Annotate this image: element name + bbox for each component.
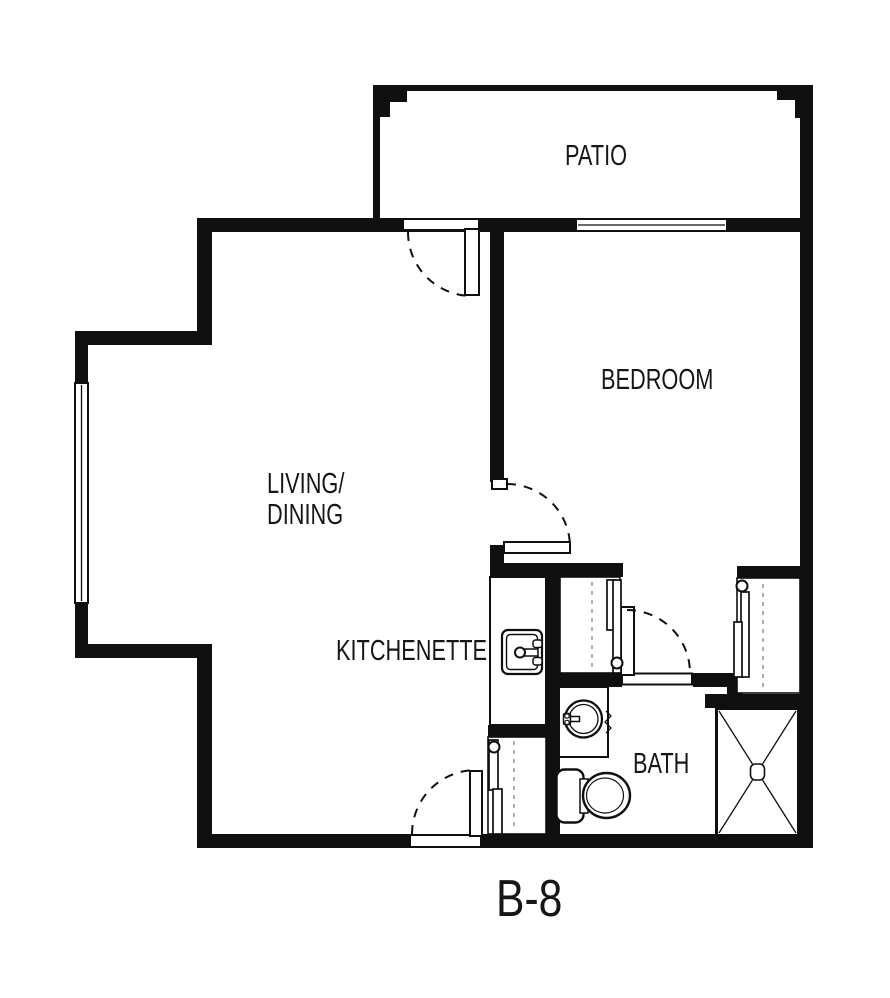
room-label-kitchenette: KITCHENETTE	[336, 636, 487, 667]
entry-closet-top-wall	[488, 725, 548, 737]
bath-top-wall-left	[560, 673, 622, 687]
room-label-bedroom: BEDROOM	[601, 365, 713, 396]
floor-plan-drawing	[0, 0, 890, 998]
kitchen-sink-icon	[502, 630, 542, 674]
room-label-living-line2: DINING	[267, 500, 343, 531]
bay-bottom-wall	[75, 644, 212, 658]
bedroom-door-jamb	[492, 479, 507, 489]
room-label-bath: BATH	[633, 749, 689, 780]
patio-door-leaf	[465, 229, 479, 295]
closet-door-panel	[734, 622, 742, 677]
patio-top-wall	[373, 85, 813, 91]
bedroom-bottom-wall-right	[737, 566, 800, 578]
bedroom-door-leaf	[504, 542, 570, 553]
windows	[75, 219, 727, 847]
plan-title: B-8	[496, 872, 562, 926]
shower-top-wall	[705, 694, 800, 708]
floor-plan: PATIO BEDROOM LIVING/ DINING KITCHENETTE…	[0, 0, 890, 998]
left-exterior-wall-lower	[197, 644, 212, 848]
shower-icon	[717, 709, 799, 836]
closet-door-pull-icon	[612, 658, 623, 669]
bath-door-swing-arc	[627, 610, 690, 673]
room-label-living-line1: LIVING/	[267, 469, 344, 500]
living-bedroom-wall-lower	[490, 545, 504, 577]
toilet-icon	[557, 770, 631, 823]
right-exterior-wall	[800, 85, 813, 848]
bay-top-wall	[75, 331, 212, 345]
entry-door-swing-arc	[412, 770, 476, 834]
closet-door-pull-icon	[737, 581, 748, 592]
patio-door-swing-arc	[408, 232, 472, 296]
closet-door-panel	[493, 789, 502, 834]
walls	[75, 85, 813, 848]
bathroom-sink-icon	[559, 687, 611, 757]
bedroom-bottom-wall-left	[504, 563, 623, 577]
living-bedroom-wall-upper	[490, 230, 504, 482]
entry-door-leaf	[470, 771, 482, 836]
left-exterior-wall-upper	[197, 218, 212, 345]
room-label-patio: PATIO	[565, 141, 627, 172]
shower-drain-icon	[751, 764, 765, 780]
patio-corner-post-left	[373, 98, 390, 117]
closet-door-pull-icon	[489, 742, 500, 753]
bedroom-door-swing-arc	[507, 484, 570, 547]
